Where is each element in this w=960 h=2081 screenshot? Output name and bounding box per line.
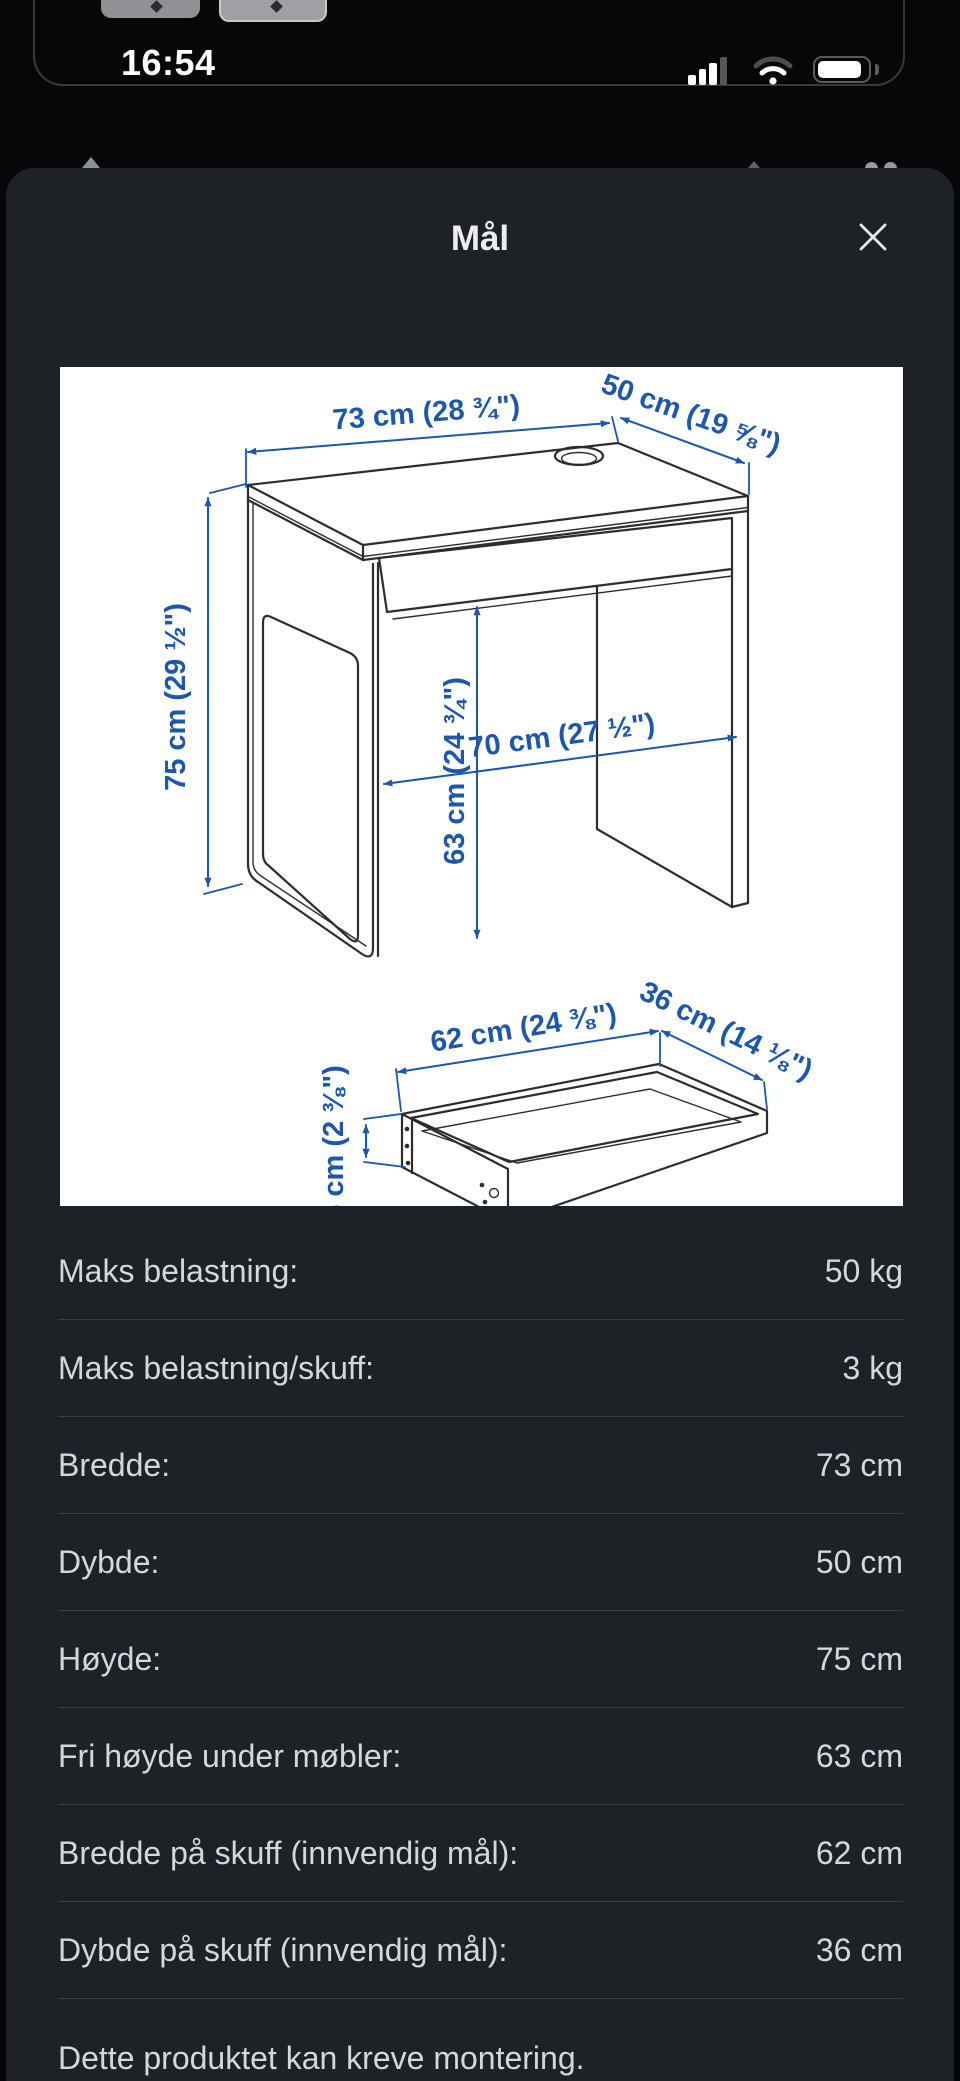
wifi-icon [752, 54, 794, 85]
dimension-diagram: 73 cm (28 ¾") 50 cm (19 ⅝") 75 cm (29 ½"… [60, 367, 903, 1206]
spec-value: 62 cm [816, 1835, 903, 1872]
spec-row: Bredde på skuff (innvendig mål): 62 cm [58, 1805, 903, 1902]
dim-label-width: 73 cm (28 ¾") [331, 390, 521, 437]
spec-value: 63 cm [816, 1738, 903, 1775]
toolbar-button-left[interactable] [101, 0, 200, 18]
dim-label-clearance-height: 63 cm (24 ¾") [439, 677, 471, 865]
desk-line-art [248, 443, 748, 956]
spec-label: Bredde: [58, 1447, 170, 1484]
spec-row: Maks belastning: 50 kg [58, 1223, 903, 1320]
spec-row: Høyde: 75 cm [58, 1611, 903, 1708]
desk-dimension-drawing: 73 cm (28 ¾") 50 cm (19 ⅝") 75 cm (29 ½"… [60, 367, 903, 1206]
assembly-note: Dette produktet kan kreve montering. [58, 2040, 585, 2077]
spec-value: 50 kg [825, 1253, 903, 1290]
spec-value: 50 cm [816, 1544, 903, 1581]
spec-value: 73 cm [816, 1447, 903, 1484]
dimension-labels: 73 cm (28 ¾") 50 cm (19 ⅝") 75 cm (29 ½"… [160, 368, 817, 1206]
spec-row: Bredde: 73 cm [58, 1417, 903, 1514]
measurements-sheet: Mål [6, 168, 954, 2081]
spec-label: Bredde på skuff (innvendig mål): [58, 1835, 518, 1872]
spec-row: Dybde på skuff (innvendig mål): 36 cm [58, 1902, 903, 1999]
spec-label: Fri høyde under møbler: [58, 1738, 401, 1775]
spec-label: Dybde på skuff (innvendig mål): [58, 1932, 507, 1969]
spec-label: Maks belastning/skuff: [58, 1350, 374, 1387]
spec-list: Maks belastning: 50 kg Maks belastning/s… [58, 1223, 903, 1999]
spec-value: 3 kg [843, 1350, 903, 1387]
dim-label-drawer-height: 6 cm (2 ⅜") [318, 1065, 350, 1206]
dim-label-height: 75 cm (29 ½") [160, 603, 192, 791]
spec-label: Maks belastning: [58, 1253, 298, 1290]
status-time: 16:54 [121, 42, 216, 84]
spec-label: Dybde: [58, 1544, 159, 1581]
cellular-signal-icon [688, 56, 730, 85]
dim-label-clearance-width: 70 cm (27 ½") [467, 708, 657, 765]
drawer-line-art [402, 1064, 767, 1206]
close-icon [856, 220, 890, 254]
dim-label-drawer-width: 62 cm (24 ⅜") [428, 998, 619, 1059]
close-button[interactable] [852, 216, 894, 258]
spec-label: Høyde: [58, 1641, 161, 1678]
underlying-pointer-icon [82, 157, 100, 168]
spec-value: 75 cm [816, 1641, 903, 1678]
sheet-title: Mål [6, 219, 954, 259]
battery-cap [875, 64, 879, 75]
spec-row: Fri høyde under møbler: 63 cm [58, 1708, 903, 1805]
spec-row: Maks belastning/skuff: 3 kg [58, 1320, 903, 1417]
battery-icon [813, 56, 871, 83]
spec-row: Dybde: 50 cm [58, 1514, 903, 1611]
spec-value: 36 cm [816, 1932, 903, 1969]
underlying-pointer-icon [748, 161, 760, 168]
